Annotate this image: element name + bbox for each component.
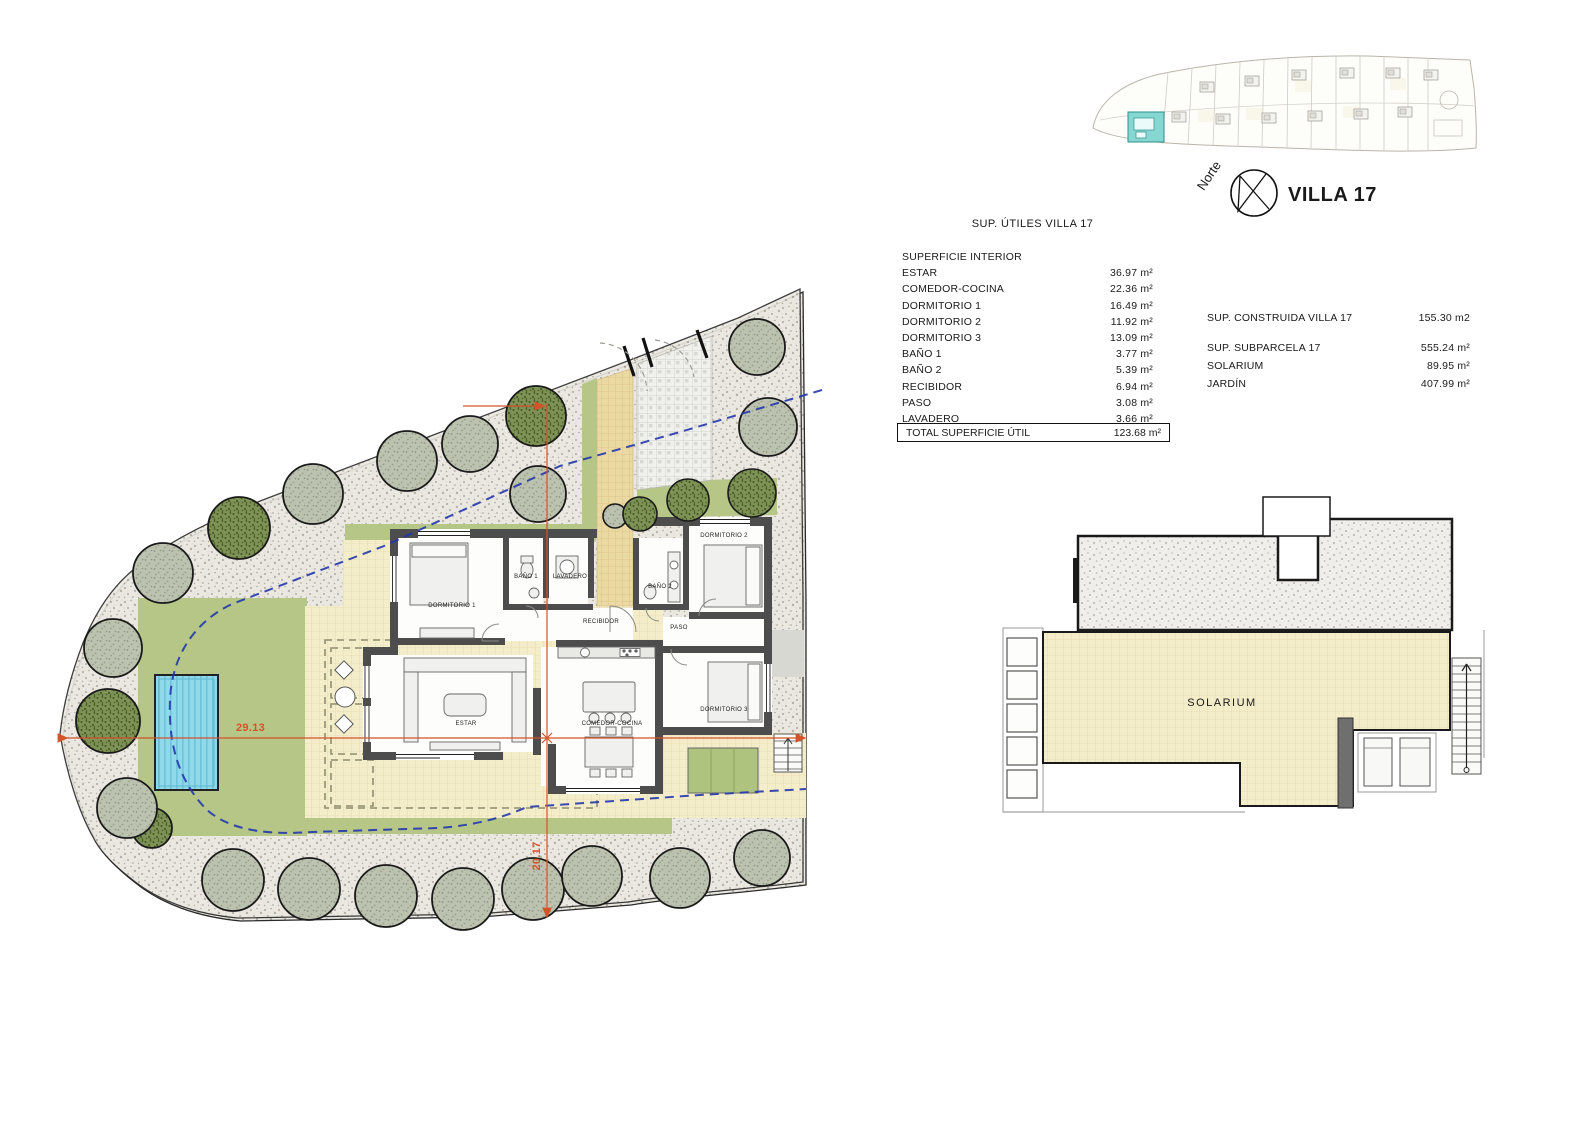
architectural-sheet: SUP. ÚTILES VILLA 17 SUPERFICIE INTERIOR… (0, 0, 1591, 1125)
room-label-paso: PASO (670, 625, 687, 631)
pool (155, 675, 218, 790)
room-label-lavadero: LAVADERO (553, 574, 587, 580)
room-label-dormitorio3: DORMITORIO 3 (700, 707, 748, 713)
areas-table-total: TOTAL SUPERFICIE ÚTIL 123.68 m² (897, 423, 1170, 442)
areas-table-header: SUPERFICIE INTERIOR (902, 249, 1153, 265)
sunbeds (1358, 733, 1436, 792)
summary-row: SUP. SUBPARCELA 17555.24 m² (1207, 340, 1470, 355)
dimension-depth: 20.17 (531, 831, 543, 881)
entrance-path (597, 368, 633, 606)
room-label-bano2: BAÑO 2 (648, 584, 672, 590)
table-row: BAÑO 13.77 m² (902, 346, 1153, 362)
table-row: BAÑO 25.39 m² (902, 362, 1153, 378)
planter (688, 748, 758, 793)
table-row: DORMITORIO 313.09 m² (902, 330, 1153, 346)
side-walk (772, 630, 804, 677)
room-label-dormitorio2: DORMITORIO 2 (700, 533, 748, 539)
roof-stairs (1452, 658, 1481, 774)
roof-plan (1003, 497, 1484, 812)
page-title: VILLA 17 (1288, 184, 1377, 207)
room-label-bano1: BAÑO 1 (514, 574, 538, 580)
highlighted-plot (1128, 112, 1164, 142)
table-row: COMEDOR-COCINA22.36 m² (902, 281, 1153, 297)
table-row: ESTAR36.97 m² (902, 265, 1153, 281)
areas-table: SUPERFICIE INTERIOR ESTAR36.97 m² COMEDO… (902, 249, 1153, 427)
room-label-estar: ESTAR (455, 721, 476, 727)
table-row: DORMITORIO 211.92 m² (902, 314, 1153, 330)
table-row: PASO3.08 m² (902, 395, 1153, 411)
room-label-dormitorio1: DORMITORIO 1 (428, 603, 476, 609)
lounge-furniture (335, 661, 355, 733)
summary-row: SOLARIUM89.95 m² (1207, 358, 1470, 373)
room-label-recibidor: RECIBIDOR (583, 619, 619, 625)
roof-wall (1338, 718, 1353, 808)
summary-row: JARDÍN407.99 m² (1207, 376, 1470, 391)
site-plan-drawing (0, 0, 1591, 1125)
north-compass-icon (1231, 170, 1277, 216)
site-location-map (1093, 56, 1476, 151)
table-row: DORMITORIO 116.49 m² (902, 298, 1153, 314)
room-label-comedor-cocina: COMEDOR-COCINA (582, 721, 643, 727)
areas-table-title: SUP. ÚTILES VILLA 17 (897, 218, 1168, 230)
summary-row: SUP. CONSTRUIDA VILLA 17155.30 m2 (1207, 310, 1470, 325)
table-row: RECIBIDOR6.94 m² (902, 379, 1153, 395)
solarium-label: SOLARIUM (1172, 697, 1272, 709)
dimension-width: 29.13 (236, 722, 265, 734)
site-plan (60, 289, 822, 930)
garden-steps (774, 734, 802, 772)
pergola-posts (1007, 638, 1037, 798)
